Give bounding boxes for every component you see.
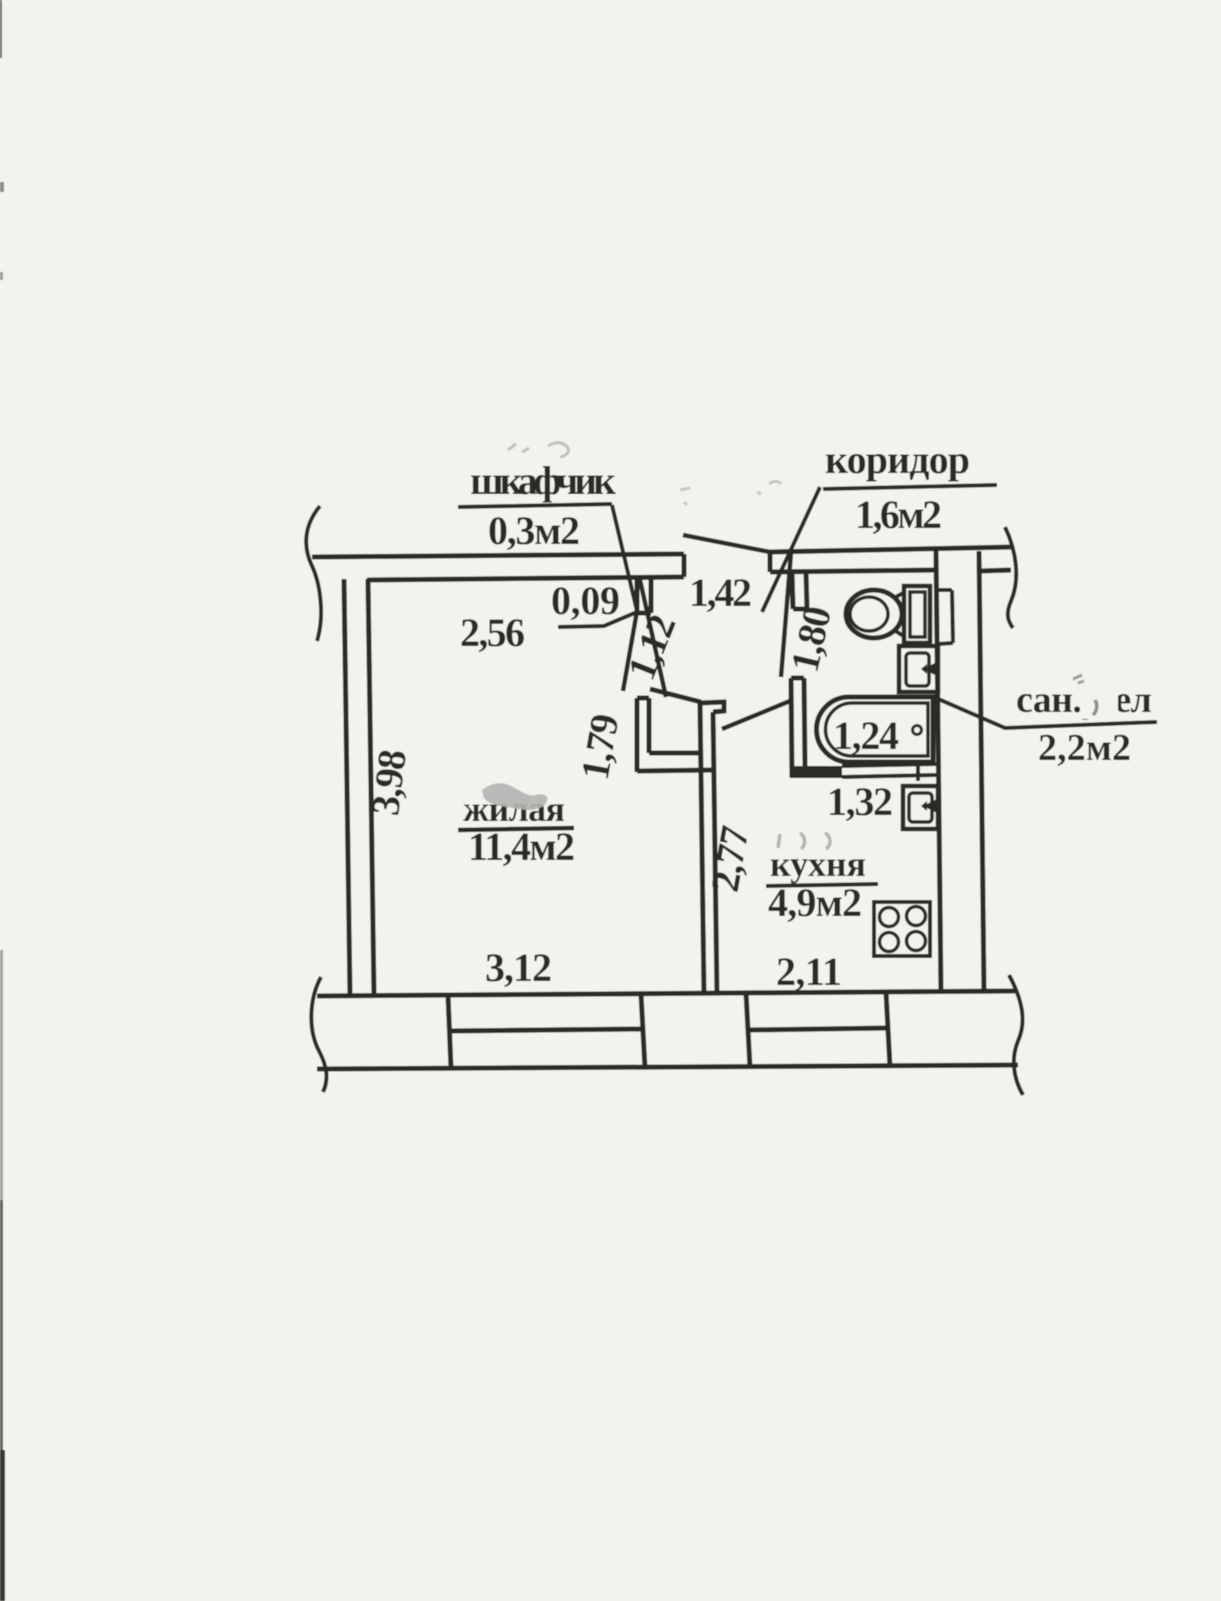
svg-text:1,24: 1,24 [833,713,899,758]
svg-text:1,42: 1,42 [689,570,752,615]
svg-text:0,3м2: 0,3м2 [488,508,580,553]
svg-text:кухня: кухня [770,844,866,884]
svg-text:3,98: 3,98 [362,747,415,818]
svg-text:4,9м2: 4,9м2 [768,880,862,925]
svg-text:2,2м2: 2,2м2 [1038,727,1131,769]
svg-text:1,32: 1,32 [827,779,893,824]
svg-text:шкафчик: шкафчик [470,458,616,503]
svg-text:11,4м2: 11,4м2 [468,824,575,869]
svg-text:коридор: коридор [825,437,970,482]
svg-text:2,56: 2,56 [460,610,525,655]
svg-text:1,6м2: 1,6м2 [855,492,942,537]
svg-text:3,12: 3,12 [485,945,552,990]
svg-text:0,09: 0,09 [551,578,620,623]
svg-text:2,11: 2,11 [776,949,842,994]
